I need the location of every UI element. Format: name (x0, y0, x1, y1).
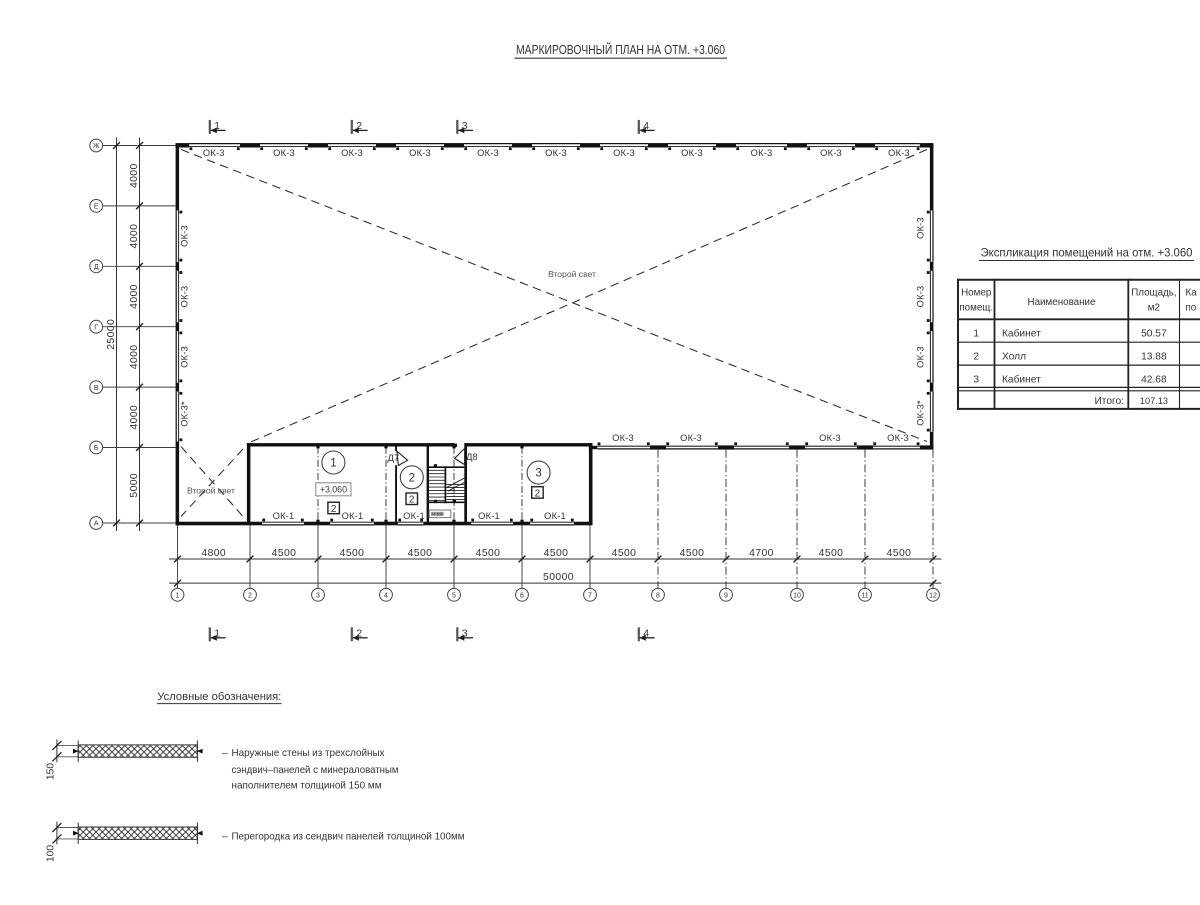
svg-text:9: 9 (724, 593, 728, 600)
svg-text:2: 2 (535, 488, 541, 499)
svg-text:ОК-3: ОК-3 (203, 148, 225, 158)
svg-text:4: 4 (643, 120, 649, 132)
svg-text:помещ.: помещ. (959, 303, 993, 314)
svg-text:100: 100 (46, 845, 57, 862)
svg-text:ОК-3: ОК-3 (180, 225, 190, 247)
svg-text:2: 2 (356, 628, 362, 640)
svg-text:2: 2 (409, 495, 415, 506)
svg-text:4500: 4500 (819, 548, 844, 559)
svg-text:ОК-3: ОК-3 (180, 346, 190, 368)
svg-text:ОК-3: ОК-3 (180, 286, 190, 308)
svg-text:107.13: 107.13 (1140, 396, 1168, 406)
svg-text:МАРКИРОВОЧНЫЙ ПЛАН НА ОТМ. +3.: МАРКИРОВОЧНЫЙ ПЛАН НА ОТМ. +3.060 (516, 42, 725, 57)
svg-text:4000: 4000 (129, 163, 140, 188)
svg-text:ОК-3: ОК-3 (916, 286, 926, 308)
svg-text:50.57: 50.57 (1141, 329, 1167, 340)
svg-text:ОК-3*: ОК-3* (916, 400, 926, 426)
svg-text:2: 2 (248, 593, 252, 600)
svg-text:50000: 50000 (543, 572, 574, 583)
svg-text:4500: 4500 (476, 548, 501, 559)
svg-text:4000: 4000 (129, 224, 140, 249)
svg-text:ОК-3: ОК-3 (612, 433, 634, 443)
svg-text:сэндвич–панелей с минераловатн: сэндвич–панелей с минераловатным (232, 765, 399, 776)
svg-text:4000: 4000 (129, 345, 140, 370)
svg-text:ОК-3: ОК-3 (916, 217, 926, 239)
svg-text:Второй свет: Второй свет (548, 269, 596, 279)
svg-text:5000: 5000 (129, 473, 140, 498)
svg-text:3: 3 (535, 468, 541, 480)
svg-text:ОК-1: ОК-1 (544, 511, 566, 521)
svg-text:1: 1 (214, 120, 220, 132)
svg-text:4500: 4500 (544, 548, 569, 559)
svg-text:6: 6 (520, 593, 524, 600)
svg-text:ОК-3: ОК-3 (680, 433, 702, 443)
svg-text:–: – (222, 748, 228, 759)
svg-text:Наименование: Наименование (1028, 297, 1096, 308)
svg-text:Ж: Ж (93, 143, 100, 150)
svg-text:ОК-3: ОК-3 (477, 148, 499, 158)
svg-text:2: 2 (409, 472, 415, 484)
svg-text:2: 2 (356, 120, 362, 132)
svg-text:ОК-3*: ОК-3* (180, 401, 190, 427)
svg-text:12: 12 (929, 593, 937, 600)
svg-text:ОК-3: ОК-3 (613, 148, 635, 158)
svg-text:Ка: Ка (1186, 287, 1198, 298)
svg-text:5: 5 (452, 593, 456, 600)
svg-text:4000: 4000 (129, 405, 140, 430)
svg-text:Экспликация помещений на отм.: Экспликация помещений на отм. +3.060 (981, 246, 1193, 260)
svg-text:+3.060: +3.060 (320, 485, 347, 495)
svg-text:2: 2 (973, 352, 979, 363)
svg-text:Условные обозначения:: Условные обозначения: (157, 691, 281, 703)
svg-text:ОК-1: ОК-1 (273, 511, 295, 521)
svg-text:Холл: Холл (1002, 352, 1026, 363)
svg-text:Второй свет: Второй свет (187, 486, 235, 496)
svg-text:ОК-3: ОК-3 (888, 148, 910, 158)
svg-text:4500: 4500 (272, 548, 297, 559)
svg-text:Б: Б (94, 445, 99, 452)
svg-text:Наружные стены из трехслойных: Наружные стены из трехслойных (232, 748, 386, 759)
svg-text:2: 2 (331, 504, 337, 515)
svg-text:4500: 4500 (340, 548, 365, 559)
svg-text:4700: 4700 (749, 548, 774, 559)
svg-text:13.88: 13.88 (1141, 352, 1167, 363)
svg-text:Номер: Номер (961, 287, 992, 298)
svg-text:ОК-3: ОК-3 (751, 148, 773, 158)
svg-text:Кабинет: Кабинет (1002, 328, 1041, 340)
svg-text:4: 4 (384, 593, 388, 600)
svg-text:Е: Е (94, 204, 99, 211)
svg-text:10: 10 (793, 593, 801, 600)
svg-text:Итого:: Итого: (1094, 396, 1124, 407)
svg-text:3: 3 (316, 593, 320, 600)
svg-text:42.68: 42.68 (1141, 374, 1167, 385)
svg-text:Кабинет: Кабинет (1002, 373, 1041, 385)
svg-text:1: 1 (973, 329, 979, 340)
svg-text:ОК-1: ОК-1 (478, 511, 500, 521)
svg-text:25000: 25000 (106, 319, 117, 350)
svg-text:ОК-3: ОК-3 (341, 148, 363, 158)
svg-text:ОК-3: ОК-3 (916, 346, 926, 368)
svg-text:Д8: Д8 (466, 452, 478, 463)
svg-text:1: 1 (330, 458, 336, 470)
svg-text:4500: 4500 (612, 548, 637, 559)
svg-text:Д: Д (94, 264, 99, 271)
svg-text:11: 11 (861, 593, 868, 600)
svg-text:А: А (94, 521, 99, 528)
svg-text:ОК-1: ОК-1 (342, 511, 364, 521)
svg-text:ОК-3: ОК-3 (887, 433, 909, 443)
svg-text:Перегородка из сендвич панелей: Перегородка из сендвич панелей толщиной … (232, 832, 465, 843)
svg-text:4000: 4000 (129, 284, 140, 309)
svg-text:Г: Г (94, 324, 98, 331)
svg-text:наполнителем толщиной 150 мм: наполнителем толщиной 150 мм (232, 781, 382, 792)
svg-text:ОК-3: ОК-3 (409, 148, 431, 158)
svg-text:3: 3 (462, 120, 468, 132)
svg-text:м2: м2 (1148, 303, 1160, 314)
svg-text:150: 150 (46, 763, 57, 780)
svg-text:4: 4 (643, 628, 649, 640)
svg-text:ОК-3: ОК-3 (820, 148, 842, 158)
svg-text:Д7: Д7 (387, 453, 399, 464)
svg-text:ОК-1: ОК-1 (403, 511, 425, 521)
svg-text:3: 3 (973, 374, 979, 385)
svg-text:ОК-3: ОК-3 (545, 148, 567, 158)
svg-text:7: 7 (588, 593, 592, 600)
svg-text:8: 8 (656, 593, 660, 600)
svg-text:Площадь,: Площадь, (1131, 287, 1176, 298)
svg-text:В: В (94, 385, 99, 392)
svg-text:ОК-3: ОК-3 (273, 148, 295, 158)
svg-text:1: 1 (176, 593, 180, 600)
svg-text:по: по (1186, 303, 1197, 314)
svg-text:1: 1 (214, 628, 220, 640)
svg-text:+1.515: +1.515 (431, 511, 444, 516)
svg-text:ОК-3: ОК-3 (681, 148, 703, 158)
svg-text:ОК-3: ОК-3 (819, 433, 841, 443)
svg-text:4500: 4500 (887, 548, 912, 559)
svg-text:4500: 4500 (408, 548, 433, 559)
svg-text:–: – (222, 832, 228, 843)
svg-text:3: 3 (462, 628, 468, 640)
svg-text:4800: 4800 (201, 548, 226, 559)
svg-text:4500: 4500 (680, 548, 705, 559)
